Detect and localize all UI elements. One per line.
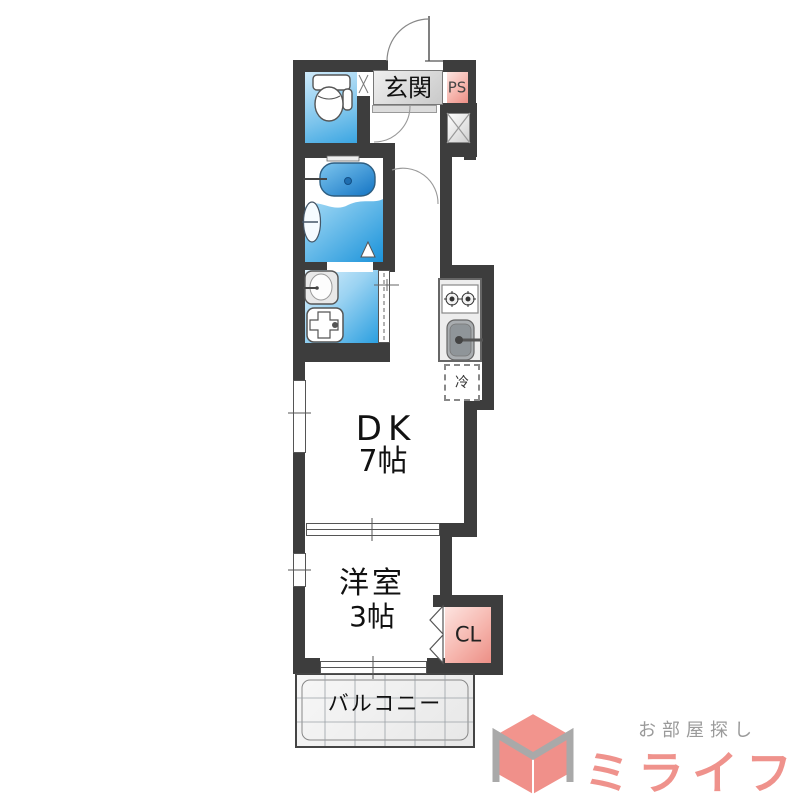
washing-machine-icon (307, 308, 343, 342)
mylife-logo-cube (496, 713, 570, 795)
stove-icon (442, 285, 478, 313)
toilet-door-icon (359, 75, 368, 93)
detail-overlay (0, 0, 800, 800)
pipe-space-label: PS (448, 81, 467, 96)
logo-brand: ミライフ (584, 737, 800, 800)
washroom-slider-detail (374, 273, 399, 341)
bathtub-icon (302, 156, 383, 262)
entrance-inner-door-arc (374, 106, 410, 142)
closet-label: CL (455, 625, 481, 646)
floorplan-canvas: 玄関 PS 冷 DK 7帖 洋室 3帖 CL バルコニー お部屋探し ミライフ (0, 0, 800, 800)
western-room-label: 洋室 (339, 569, 405, 599)
washbasin-icon (303, 271, 338, 304)
balcony-label: バルコニー (328, 694, 443, 715)
fridge-label: 冷 (455, 376, 469, 390)
corridor-door-arc (392, 168, 438, 204)
dk-label: DK (356, 412, 416, 446)
meter-box-x-icon (447, 113, 470, 143)
kitchen-sink-icon (447, 320, 483, 360)
toilet-icon (313, 75, 352, 121)
dk-size-label: 7帖 (358, 447, 407, 477)
entrance-door (387, 16, 443, 61)
western-room-size-label: 3帖 (349, 603, 395, 631)
entrance-label: 玄関 (384, 76, 432, 100)
closet-folding-door-icon (430, 606, 443, 663)
